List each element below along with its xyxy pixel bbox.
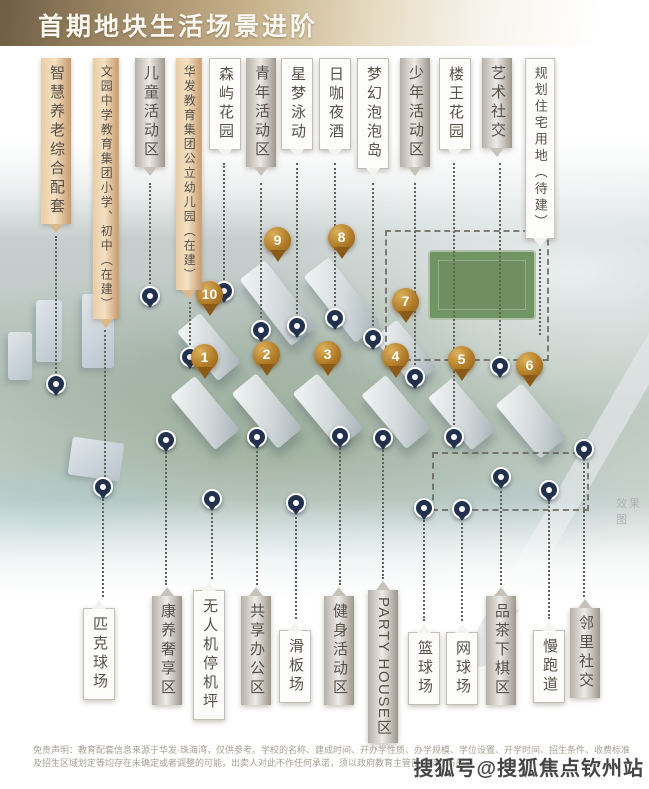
- numbered-pin-8: 8: [328, 224, 355, 251]
- bottom-leader-line-1: [102, 496, 104, 597]
- amenity-pin-icon: [202, 489, 222, 509]
- numbered-pin-3: 3: [314, 341, 341, 368]
- bottom-callout-2: 康养奢享区: [152, 596, 182, 705]
- numbered-pin-1: 1: [191, 344, 218, 371]
- render-note-label: 效果图: [616, 495, 649, 527]
- top-callout-9: 梦幻泡泡岛: [357, 58, 389, 169]
- top-leader-line-6: [260, 183, 262, 322]
- bottom-callout-4: 共享办公区: [241, 596, 271, 705]
- tower-shape-13: [8, 332, 32, 380]
- bottom-callout-11: 慢跑道: [533, 630, 565, 703]
- numbered-pin-7: 7: [392, 288, 419, 315]
- top-leader-line-5: [223, 163, 225, 283]
- top-callout-12: 艺术社交: [482, 58, 512, 148]
- amenity-pin-icon: [574, 439, 594, 459]
- amenity-pin-icon: [539, 480, 559, 500]
- numbered-pin-2: 2: [253, 341, 280, 368]
- bottom-callout-10: 品茶下棋区: [486, 596, 516, 705]
- top-callout-13: 规划住宅用地（待建）: [525, 58, 555, 239]
- top-callout-3: 儿童活动区: [135, 58, 165, 167]
- top-leader-line-3: [149, 183, 151, 288]
- bottom-leader-line-8: [423, 517, 425, 621]
- top-callout-2: 文园中学教育集团小学、初中（在建）: [93, 58, 119, 319]
- top-callout-8: 日咖夜酒: [319, 58, 351, 150]
- amenity-pin-icon: [490, 356, 510, 376]
- top-leader-line-12: [499, 163, 501, 358]
- bottom-leader-line-3: [211, 508, 213, 579]
- amenity-pin-icon: [452, 499, 472, 519]
- amenity-pin-icon: [330, 426, 350, 446]
- amenity-pin-icon: [251, 320, 271, 340]
- amenity-pin-icon: [373, 428, 393, 448]
- title-banner: 首期地块生活场景进阶: [0, 0, 649, 46]
- top-leader-line-1: [55, 236, 57, 377]
- top-leader-line-7: [296, 163, 298, 318]
- poster-root: 首期地块生活场景进阶 效果图 免责声明：教育配套信息来源于华发·珠海湾，仅供参考…: [0, 0, 649, 789]
- bottom-callout-5: 滑板场: [279, 630, 311, 703]
- top-callout-1: 智慧养老综合配套: [41, 58, 71, 224]
- amenity-pin-icon: [405, 367, 425, 387]
- amenity-pin-icon: [247, 427, 267, 447]
- tower-shape-14: [68, 437, 125, 482]
- bottom-callout-12: 邻里社交: [570, 608, 600, 698]
- top-callout-4: 华发教育集团公立幼儿园（在建）: [176, 58, 202, 290]
- amenity-pin-icon: [325, 308, 345, 328]
- bottom-leader-line-10: [500, 486, 502, 585]
- top-leader-line-9: [372, 183, 374, 330]
- page-title: 首期地块生活场景进阶: [38, 7, 318, 43]
- top-leader-line-13: [539, 249, 541, 335]
- top-leader-line-4: [189, 302, 191, 349]
- tower-shape-11: [36, 300, 62, 362]
- bottom-leader-line-7: [382, 447, 384, 579]
- amenity-pin-icon: [287, 316, 307, 336]
- numbered-pin-9: 9: [264, 227, 291, 254]
- bottom-leader-line-9: [461, 518, 463, 621]
- top-leader-line-11: [453, 163, 455, 429]
- bottom-callout-7: PARTY HOUSE区: [368, 590, 398, 743]
- numbered-pin-6: 6: [516, 352, 543, 379]
- bottom-leader-line-11: [548, 499, 550, 619]
- bottom-callout-1: 匹克球场: [83, 608, 115, 700]
- amenity-pin-icon: [286, 493, 306, 513]
- amenity-pin-icon: [156, 430, 176, 450]
- watermark: 搜狐号@搜狐焦点钦州站: [413, 752, 644, 781]
- amenity-pin-icon: [93, 477, 113, 497]
- numbered-pin-5: 5: [448, 346, 475, 373]
- bottom-callout-9: 网球场: [446, 632, 478, 705]
- amenity-pin-icon: [444, 427, 464, 447]
- bottom-callout-6: 健身活动区: [324, 596, 354, 705]
- bottom-leader-line-12: [583, 458, 585, 597]
- bottom-callout-3: 无人机停机坪: [193, 590, 225, 720]
- bottom-leader-line-4: [256, 446, 258, 585]
- amenity-pin-icon: [363, 328, 383, 348]
- top-leader-line-2: [104, 330, 106, 477]
- amenity-pin-icon: [46, 374, 66, 394]
- amenity-pin-icon: [140, 286, 160, 306]
- top-leader-line-10: [414, 183, 416, 369]
- bottom-callout-8: 篮球场: [408, 632, 440, 705]
- bottom-leader-line-5: [295, 512, 297, 619]
- top-callout-6: 青年活动区: [246, 58, 276, 167]
- top-callout-11: 楼王花园: [439, 58, 471, 150]
- amenity-pin-icon: [414, 498, 434, 518]
- top-callout-7: 星梦泳动: [281, 58, 313, 150]
- amenity-pin-icon: [491, 467, 511, 487]
- bottom-leader-line-6: [339, 445, 341, 585]
- numbered-pin-4: 4: [382, 343, 409, 370]
- top-callout-5: 森屿花园: [209, 58, 241, 150]
- top-callout-10: 少年活动区: [400, 58, 430, 167]
- bottom-leader-line-2: [165, 449, 167, 585]
